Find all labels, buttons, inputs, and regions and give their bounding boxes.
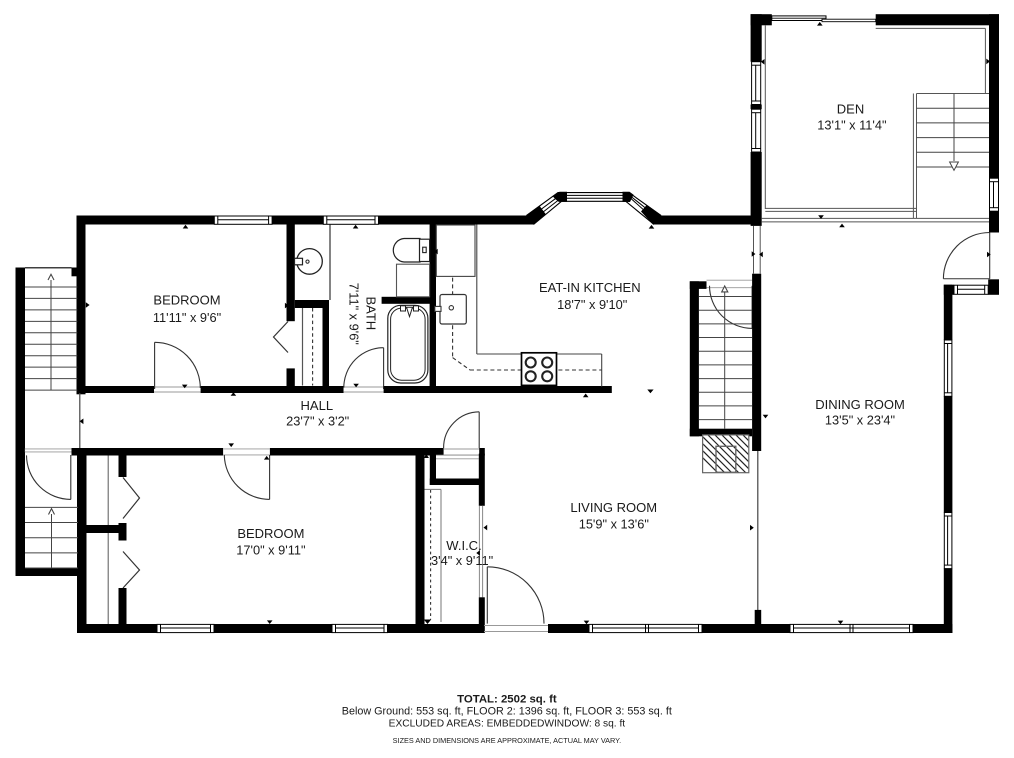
svg-text:13'1" x 11'4": 13'1" x 11'4" (817, 118, 886, 133)
svg-text:23'7" x 3'2": 23'7" x 3'2" (286, 414, 349, 429)
svg-text:SIZES AND DIMENSIONS ARE APPRO: SIZES AND DIMENSIONS ARE APPROXIMATE, AC… (393, 736, 621, 745)
svg-text:7'11" x 9'6": 7'11" x 9'6" (347, 283, 362, 345)
svg-text:13'5" x 23'4": 13'5" x 23'4" (825, 413, 895, 428)
svg-text:15'9" x 13'6": 15'9" x 13'6" (579, 517, 649, 532)
svg-text:DINING ROOM: DINING ROOM (815, 397, 905, 412)
svg-text:BATH: BATH (363, 296, 378, 330)
svg-text:BEDROOM: BEDROOM (153, 293, 220, 308)
svg-text:LIVING ROOM: LIVING ROOM (570, 500, 657, 515)
svg-text:18'7" x 9'10": 18'7" x 9'10" (557, 297, 627, 312)
svg-text:DEN: DEN (837, 101, 864, 116)
svg-text:EAT-IN KITCHEN: EAT-IN KITCHEN (539, 280, 641, 295)
svg-text:EXCLUDED AREAS: EMBEDDEDWINDOW: EXCLUDED AREAS: EMBEDDEDWINDOW: 8 sq. ft (389, 718, 626, 729)
svg-text:17'0" x 9'11": 17'0" x 9'11" (236, 543, 305, 558)
svg-text:W.I.C.: W.I.C. (446, 538, 481, 553)
svg-text:BEDROOM: BEDROOM (237, 526, 304, 541)
svg-text:11'11" x 9'6": 11'11" x 9'6" (153, 310, 221, 325)
svg-text:TOTAL: 2502 sq. ft: TOTAL: 2502 sq. ft (457, 693, 557, 705)
svg-text:Below Ground: 553 sq. ft, FLOO: Below Ground: 553 sq. ft, FLOOR 2: 1396 … (342, 706, 672, 718)
svg-text:3'4" x 9'11": 3'4" x 9'11" (431, 553, 493, 568)
svg-text:HALL: HALL (301, 398, 334, 413)
